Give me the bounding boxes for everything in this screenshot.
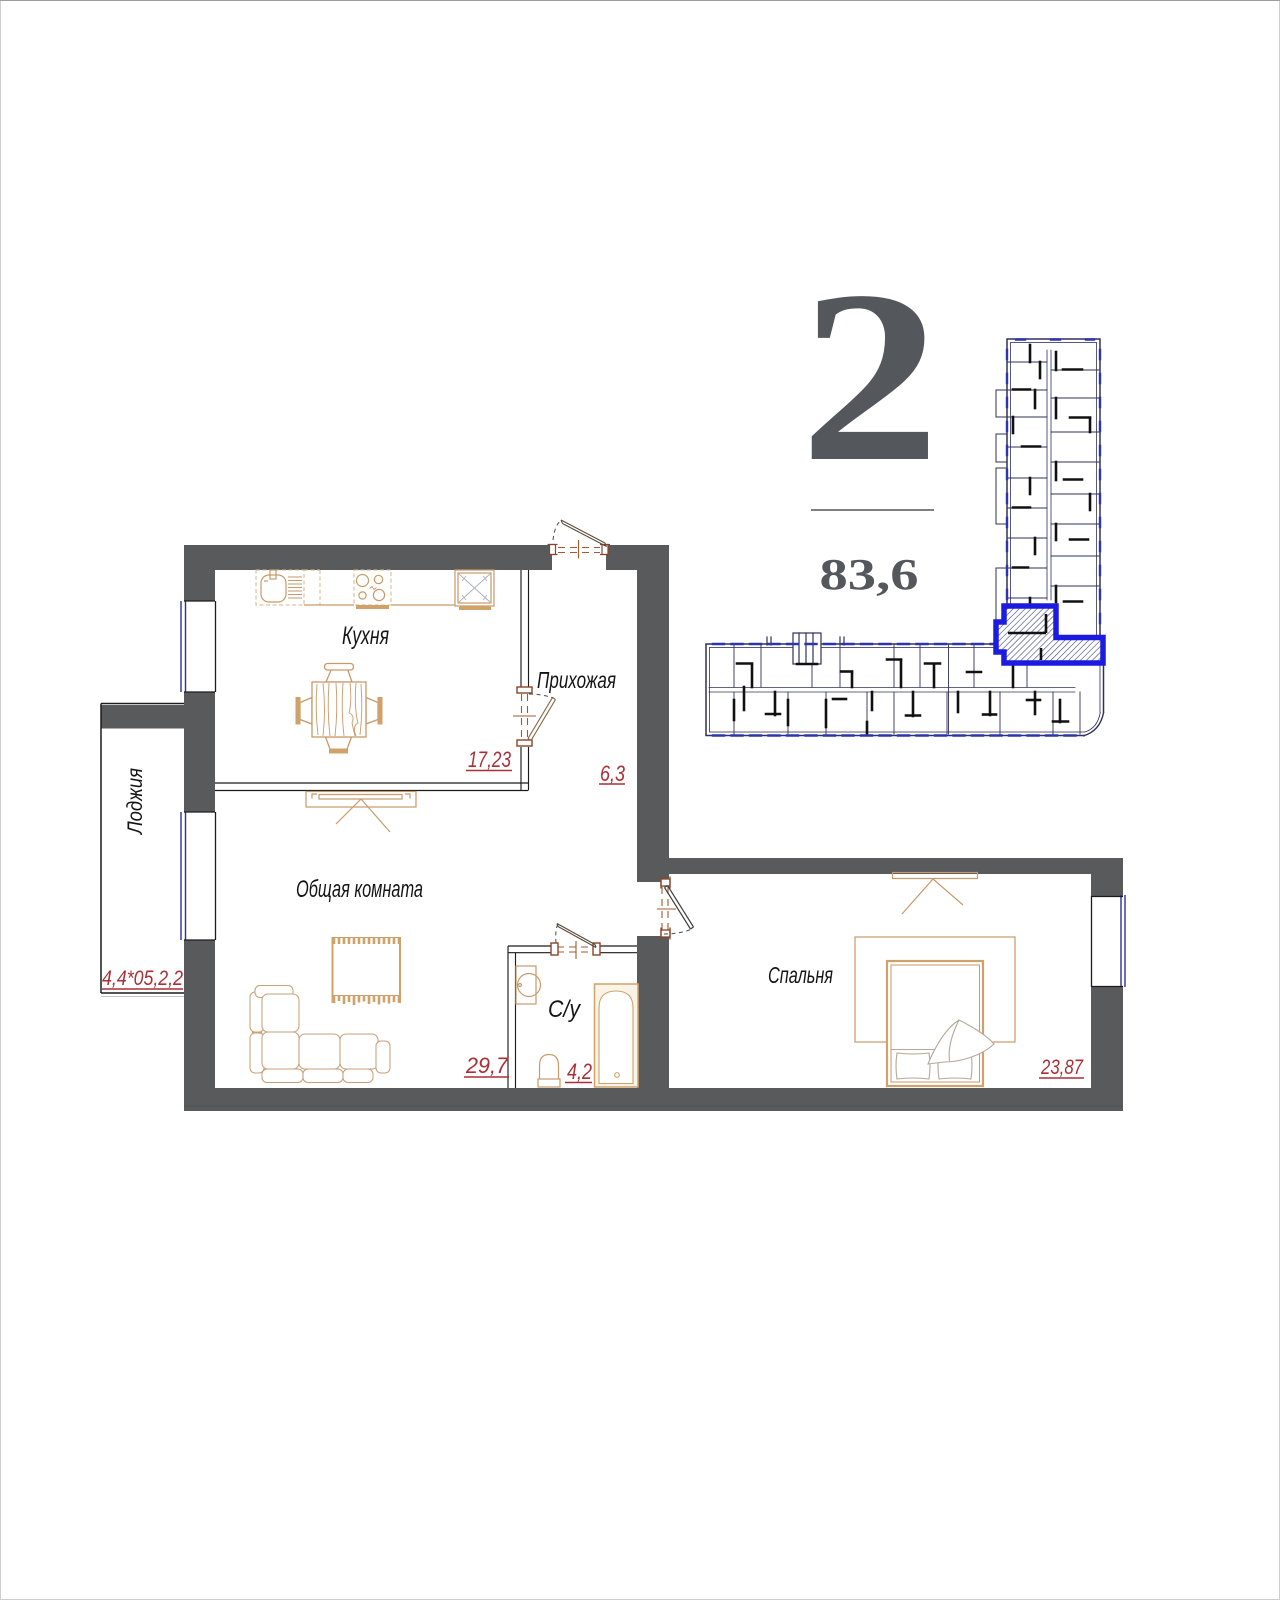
svg-text:4,4*05,2,2: 4,4*05,2,2 <box>102 967 183 990</box>
svg-text:Общая комната: Общая комната <box>296 876 423 903</box>
svg-text:23,87: 23,87 <box>1040 1056 1084 1079</box>
svg-text:83,6: 83,6 <box>820 550 919 599</box>
svg-text:Спальня: Спальня <box>768 962 833 988</box>
svg-text:4,2: 4,2 <box>567 1059 592 1084</box>
svg-text:Лоджия: Лоджия <box>124 768 147 836</box>
svg-text:Прихожая: Прихожая <box>537 667 616 693</box>
svg-text:6,3: 6,3 <box>600 761 626 786</box>
svg-text:2: 2 <box>800 241 940 513</box>
svg-text:Кухня: Кухня <box>342 622 389 650</box>
svg-text:29,7: 29,7 <box>465 1053 509 1078</box>
svg-text:С/у: С/у <box>548 996 582 1023</box>
svg-text:17,23: 17,23 <box>468 747 512 772</box>
